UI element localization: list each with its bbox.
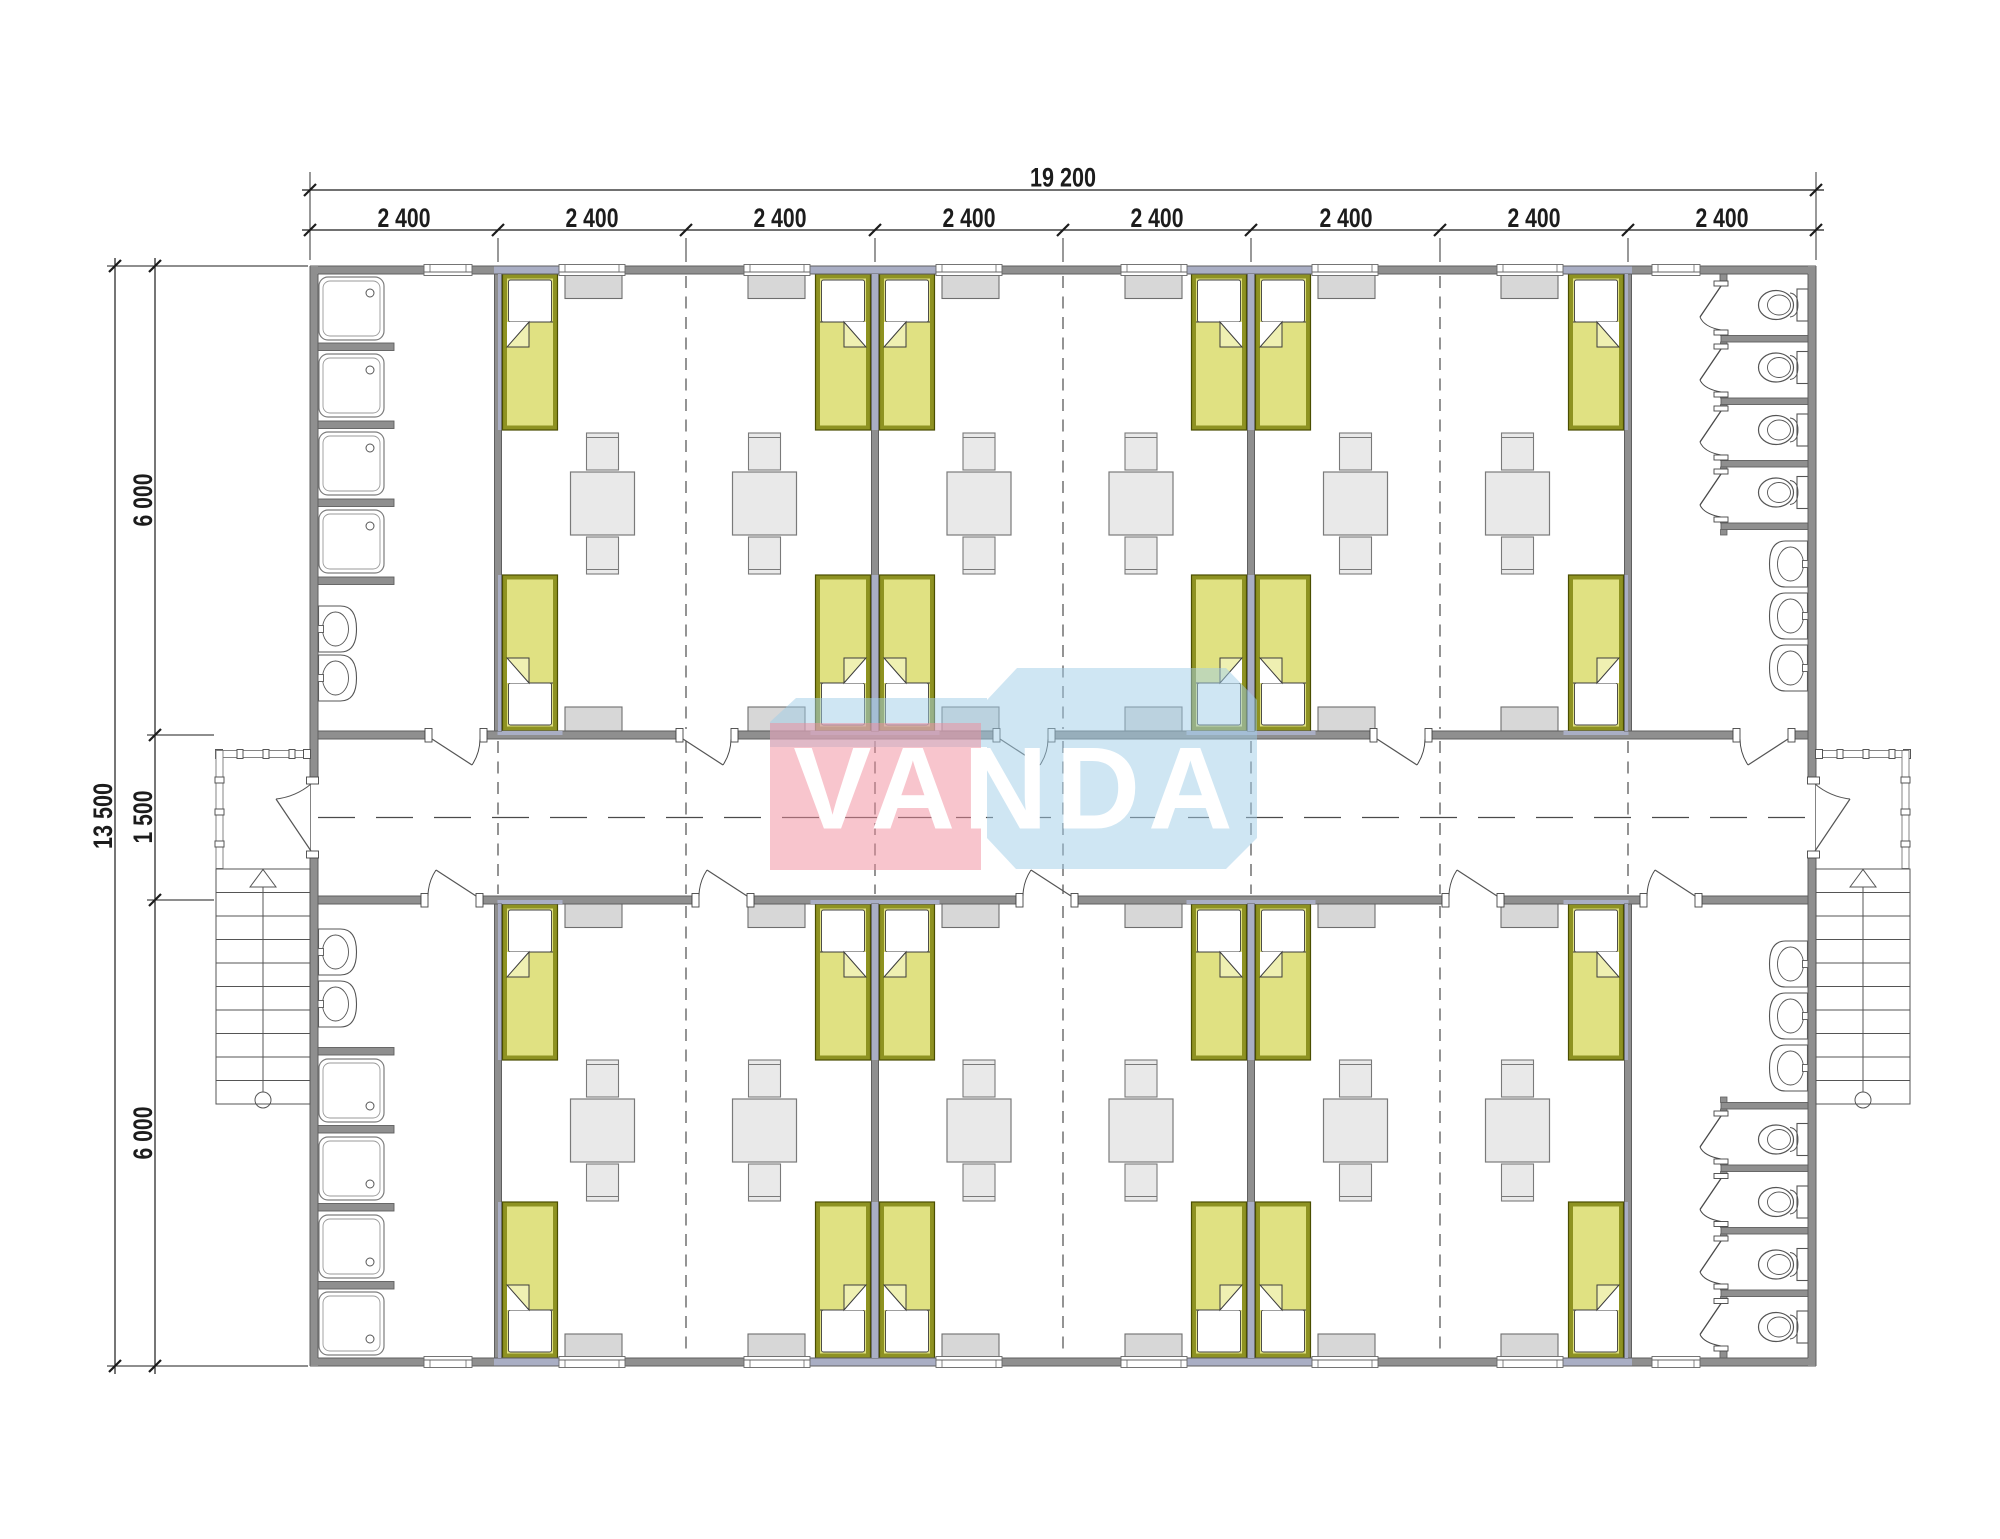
svg-text:1 500: 1 500: [128, 791, 158, 844]
svg-text:2 400: 2 400: [566, 203, 619, 233]
svg-text:19 200: 19 200: [1030, 163, 1096, 193]
svg-text:6 000: 6 000: [128, 474, 158, 527]
svg-text:2 400: 2 400: [943, 203, 996, 233]
svg-text:2 400: 2 400: [754, 203, 807, 233]
svg-text:2 400: 2 400: [1508, 203, 1561, 233]
svg-text:2 400: 2 400: [378, 203, 431, 233]
svg-text:6 000: 6 000: [128, 1107, 158, 1160]
svg-text:2 400: 2 400: [1696, 203, 1749, 233]
svg-text:2 400: 2 400: [1131, 203, 1184, 233]
svg-text:13 500: 13 500: [88, 783, 118, 849]
svg-text:2 400: 2 400: [1320, 203, 1373, 233]
svg-text:VANDA: VANDA: [793, 723, 1240, 854]
